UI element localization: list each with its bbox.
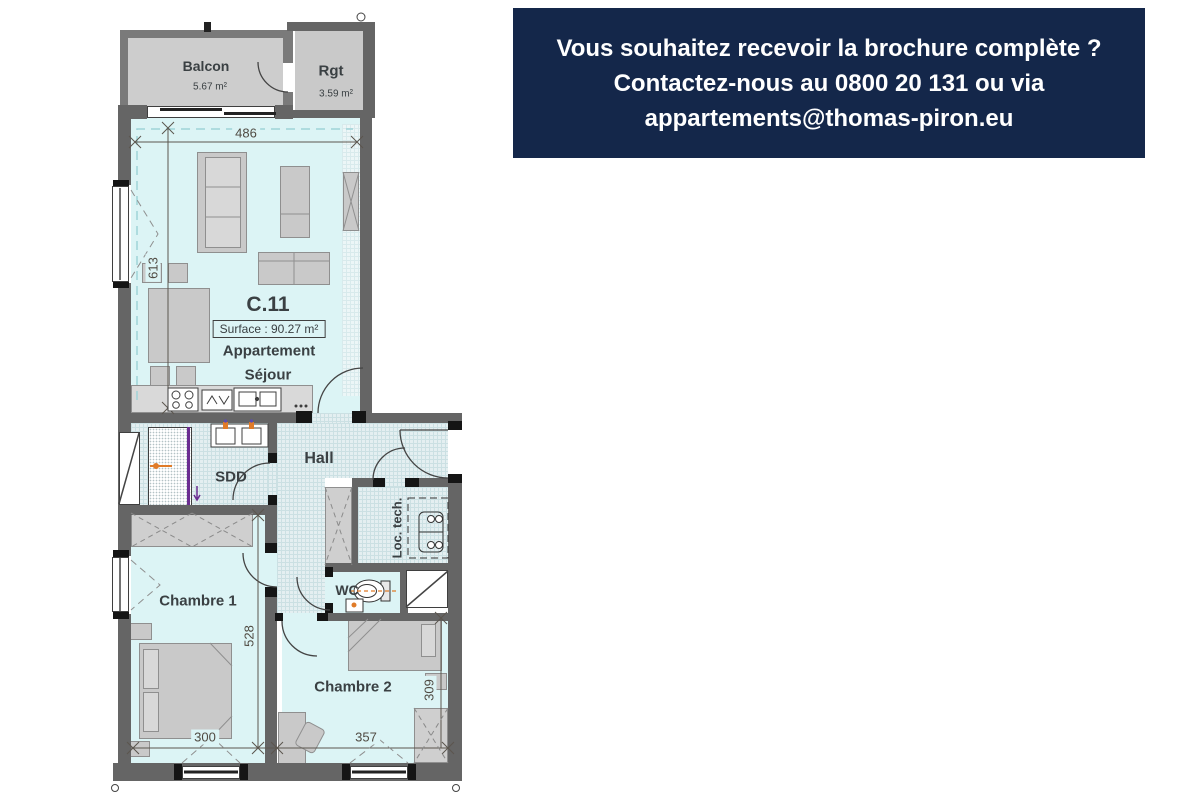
door-gap-living-hall [312, 413, 352, 423]
dim-living-depth: 613 [146, 254, 161, 282]
bed1-nightstand [128, 623, 152, 640]
bedroom1-closet [131, 513, 253, 547]
label-storage-area: 3.59 m² [319, 89, 353, 100]
wall [118, 505, 277, 515]
unit-type-line2: Séjour [245, 367, 292, 384]
window-bedroom1-bottom [182, 766, 240, 779]
wall [287, 22, 375, 31]
wall [120, 30, 287, 38]
unit-type-line1: Appartement [223, 343, 316, 360]
door-gap-technical [385, 478, 405, 487]
label-storage: Rgt [319, 63, 344, 80]
dim-bedroom2-depth: 309 [422, 676, 437, 704]
wall [118, 614, 131, 763]
wall [360, 118, 372, 423]
lounge-chair [280, 166, 310, 238]
door-threshold [325, 567, 333, 577]
floor-hall-upper [277, 423, 448, 478]
label-balcony: Balcon [183, 58, 230, 74]
sofa-cushions [205, 157, 241, 248]
window-bedroom1-left [112, 557, 129, 612]
bed1-pillow [143, 649, 159, 689]
door-gap-bedroom2 [283, 613, 317, 621]
door-threshold [265, 543, 277, 553]
unit-surface: Surface : 90.27 m² [213, 320, 326, 338]
page: Vous souhaitez recevoir la brochure comp… [0, 0, 1200, 800]
label-wc: WC [335, 582, 358, 598]
dining-table [148, 288, 210, 363]
label-bedroom2: Chambre 2 [314, 679, 392, 696]
window-jamb [240, 764, 248, 780]
window-bedroom2-bottom [350, 766, 408, 779]
wall [352, 413, 462, 423]
loveseat [258, 252, 330, 285]
floor-living-strip [342, 124, 360, 396]
label-shower-room: SDD [215, 469, 247, 486]
sliding-window-balcony [147, 106, 275, 118]
label-hall: Hall [304, 450, 333, 468]
shower-door-edge [187, 427, 190, 507]
wall [118, 283, 131, 423]
bed1-pillow [143, 692, 159, 732]
door-gap-wc [325, 577, 333, 603]
wall [275, 105, 293, 119]
wall [283, 30, 293, 63]
door-threshold [448, 421, 462, 430]
shaft [406, 570, 448, 608]
door-gap-bedroom1 [265, 553, 277, 587]
door-threshold [325, 603, 333, 613]
window-jamb [408, 764, 416, 780]
window-jamb [113, 282, 129, 288]
door-threshold [317, 613, 328, 621]
door-threshold [373, 478, 385, 487]
dim-living-width: 486 [232, 126, 260, 141]
window-jamb [113, 550, 129, 557]
door-threshold [405, 478, 419, 487]
label-technical: Loc. tech. [390, 498, 405, 559]
dim-bedroom2-width: 357 [352, 730, 380, 745]
wall [287, 110, 375, 118]
label-bedroom1: Chambre 1 [159, 593, 237, 610]
shower-tray [148, 427, 192, 507]
wall [448, 478, 462, 770]
door-gap-shower [268, 463, 277, 497]
hall-wardrobe [325, 487, 352, 565]
window-jamb [174, 764, 182, 780]
tv-cabinet [343, 172, 359, 231]
wall [317, 613, 462, 621]
label-balcony-area: 5.67 m² [193, 82, 227, 93]
window-jamb [342, 764, 350, 780]
wall [118, 413, 312, 423]
window-jamb [113, 612, 129, 619]
bed1-nightstand [128, 741, 150, 757]
door-threshold [448, 474, 462, 483]
door-threshold [352, 411, 366, 423]
floor-hall-corridor [277, 478, 325, 615]
wall [352, 487, 358, 570]
dining-chair [176, 366, 196, 386]
dim-bedroom1-width: 300 [191, 730, 219, 745]
bedroom2-wardrobe [414, 708, 448, 763]
dim-bedroom1-depth: 528 [242, 622, 257, 650]
unit-code: C.11 [246, 293, 289, 317]
door-threshold [275, 613, 283, 621]
dining-chair [150, 366, 170, 386]
kitchen-counter [131, 385, 313, 413]
floor-plan: Balcon 5.67 m² Rgt 3.59 m² C.11 Surface … [0, 0, 1200, 800]
door-threshold [296, 411, 312, 423]
door-threshold [268, 453, 277, 463]
wall [118, 105, 131, 185]
window-shower-slit [119, 432, 140, 505]
wall [363, 22, 375, 118]
bed2-pillow [421, 624, 436, 657]
window-living-left [112, 186, 129, 282]
door-threshold [268, 495, 277, 505]
dining-chair [168, 263, 188, 283]
door-threshold [265, 587, 277, 597]
